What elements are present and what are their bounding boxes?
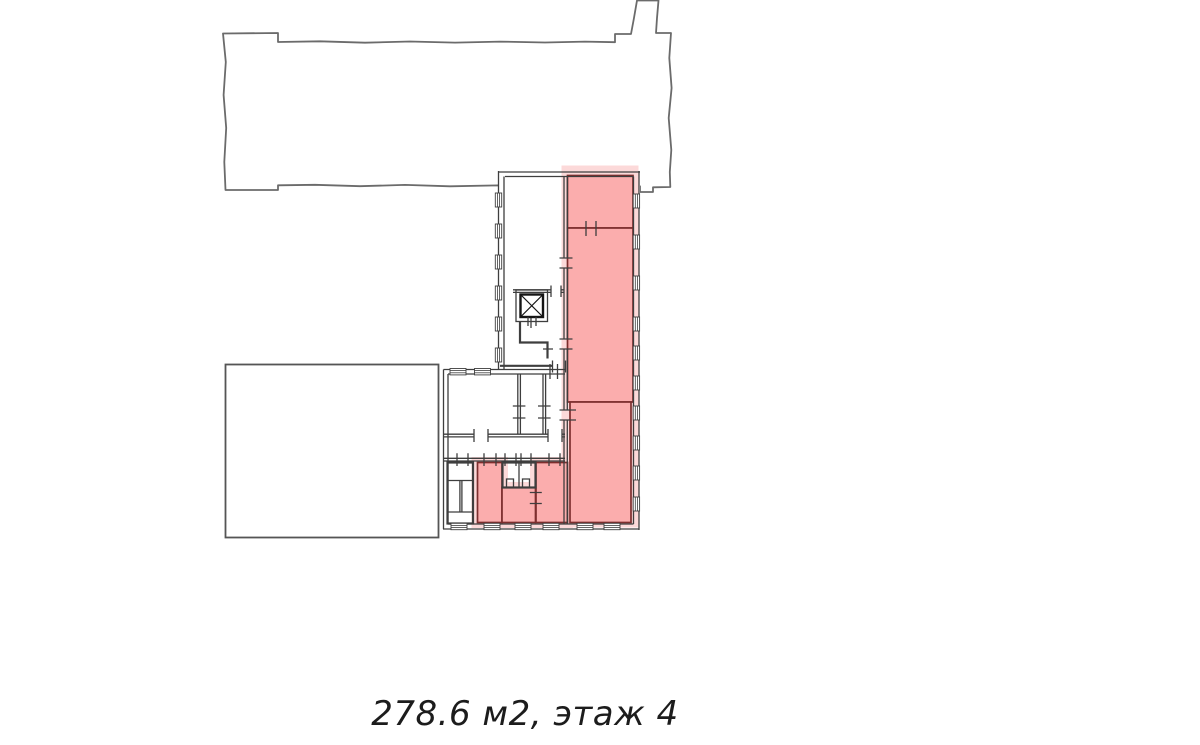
north-building-outline [223,1,672,193]
wing-building [443,166,641,531]
floor-plan [0,0,1200,745]
highlighted-room-1 [568,176,634,229]
highlighted-room-4 [478,463,503,523]
west-annex-outline [226,365,439,538]
floor-plan-svg [0,0,1200,745]
highlighted-room-3 [570,402,631,523]
highlighted-room-2 [568,228,634,402]
area-caption-text: 278.6 м2, этаж 4 [371,694,678,734]
elevator-symbol [516,290,548,322]
area-caption: 278.6 м2, этаж 4 [0,694,1050,734]
